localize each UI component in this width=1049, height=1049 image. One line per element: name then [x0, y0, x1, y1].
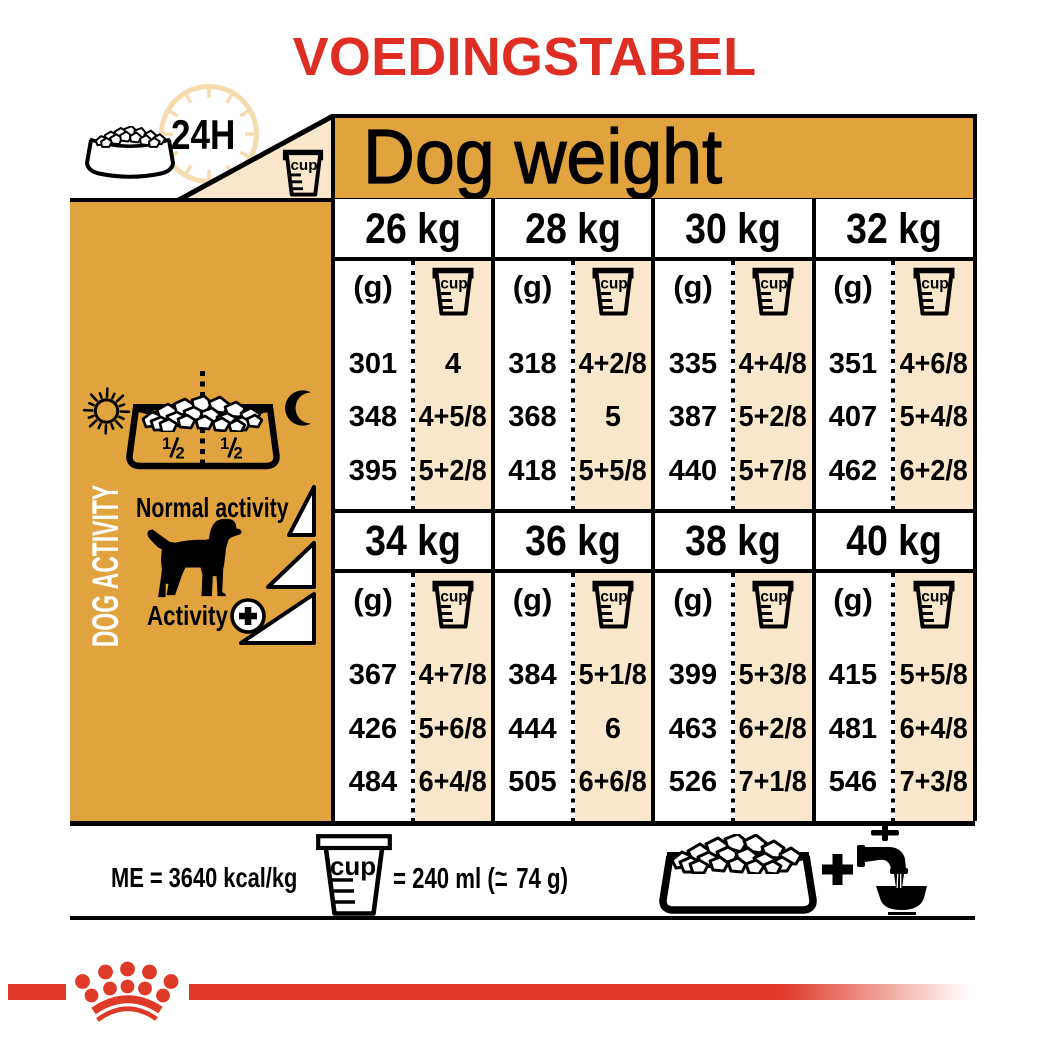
svg-text:cup: cup [330, 851, 376, 881]
svg-text:1: 1 [162, 436, 171, 453]
svg-text:1: 1 [220, 436, 229, 453]
svg-text:2: 2 [176, 445, 185, 460]
svg-text:2: 2 [234, 445, 243, 460]
